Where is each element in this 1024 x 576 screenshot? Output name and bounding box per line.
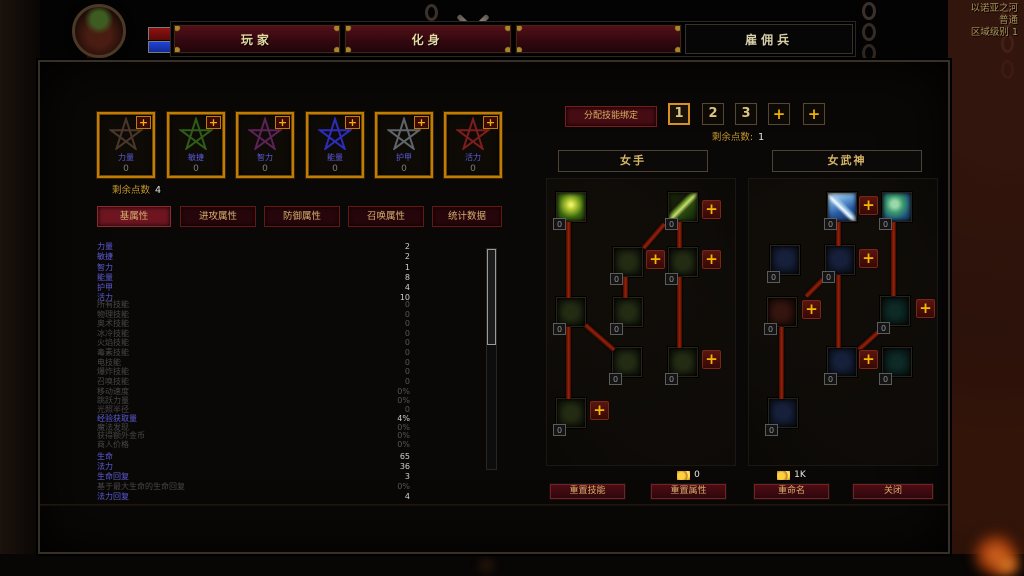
skill-point-count: 0 (824, 373, 837, 385)
skill-point-count: 0 (665, 373, 678, 385)
skill-point-count: 0 (610, 323, 623, 335)
rename-cost: 1K (753, 469, 830, 481)
add-point-button[interactable]: + (275, 116, 290, 129)
skill-point-count: 0 (822, 271, 835, 283)
skill-connector (891, 222, 896, 296)
attribute-name: 护甲 (377, 152, 431, 163)
add-skill-slot-button[interactable]: + (803, 103, 825, 125)
skill-point-count: 0 (610, 273, 623, 285)
skill-tree-title-right: 女武神 (772, 150, 922, 172)
stat-row: 生命65 (97, 452, 410, 462)
skill-slot-tab-2[interactable]: 2 (702, 103, 724, 125)
top-tab-bar: 玩家 化身 雇佣兵 (170, 21, 856, 57)
stat-row: 法力回复4 (97, 492, 410, 502)
skill-point-count: 0 (553, 218, 566, 230)
remaining-label: 剩余点数: (712, 132, 753, 143)
rename-button[interactable]: 重命名 (753, 483, 830, 500)
skill-tree-title-left: 女手 (558, 150, 708, 172)
stats-group-core: 力量2 敏捷2 智力1 能量8 护甲4 活力10 (97, 242, 410, 304)
attribute-value: 0 (377, 164, 431, 174)
gold-coin-icon (777, 471, 790, 480)
attribute-name: 智力 (238, 152, 292, 163)
close-button[interactable]: 关闭 (852, 483, 934, 500)
chain-decoration (1001, 60, 1014, 79)
skill-plus-button[interactable]: + (915, 298, 936, 319)
reset-skills-button[interactable]: 重置技能 (549, 483, 626, 500)
stat-row: 商人价格0% (97, 441, 410, 450)
stat-row: 法力36 (97, 462, 410, 472)
skill-plus-button[interactable]: + (589, 400, 610, 421)
skill-connector (779, 327, 784, 399)
attribute-card-armor[interactable]: 护甲 0 + (375, 112, 433, 178)
attribute-value: 0 (99, 164, 153, 174)
skill-point-count: 0 (665, 218, 678, 230)
attribute-value: 0 (308, 164, 362, 174)
stat-tab-defense[interactable]: 防御属性 (264, 206, 340, 227)
skill-plus-button[interactable]: + (858, 349, 879, 370)
attribute-card-intelligence[interactable]: 智力 0 + (236, 112, 294, 178)
stat-row: 生命回复3 (97, 472, 410, 482)
skill-plus-button[interactable]: + (701, 249, 722, 270)
skill-point-count: 0 (877, 322, 890, 334)
skill-plus-button[interactable]: + (701, 349, 722, 370)
skill-plus-button[interactable]: + (645, 249, 666, 270)
skill-plus-button[interactable]: + (858, 195, 879, 216)
attribute-card-vitality[interactable]: 活力 0 + (444, 112, 502, 178)
stat-row: 智力1 (97, 263, 410, 273)
stat-row: 火焰技能0 (97, 338, 410, 348)
skill-point-count: 0 (764, 323, 777, 335)
attribute-points-remaining: 剩余点数4 (112, 182, 161, 196)
attribute-value: 0 (446, 164, 500, 174)
remaining-value: 4 (155, 185, 161, 196)
stat-tab-summon[interactable]: 召唤属性 (348, 206, 424, 227)
skill-slot-tab-3[interactable]: 3 (735, 103, 757, 125)
skill-plus-button[interactable]: + (701, 199, 722, 220)
add-point-button[interactable]: + (136, 116, 151, 129)
region-area-level: 区域级别 1 (970, 27, 1018, 39)
add-point-button[interactable]: + (345, 116, 360, 129)
skill-point-count: 0 (767, 271, 780, 283)
panel-divider (40, 504, 948, 506)
stat-row: 电技能0 (97, 358, 410, 368)
stat-row: 召唤技能0 (97, 377, 410, 387)
region-difficulty: 普通 (970, 15, 1018, 27)
add-point-button[interactable]: + (414, 116, 429, 129)
game-screen: 1 65 / 65 36 / 36 以诺亚之河 普通 区域级别 1 玩家 化身 … (0, 0, 1024, 576)
stats-group-life-mana: 生命65 法力36 生命回复3 基于最大生命的生命回复0% 法力回复4 (97, 452, 410, 502)
skill-point-count: 0 (879, 218, 892, 230)
skill-point-count: 0 (765, 424, 778, 436)
skill-point-count: 0 (553, 424, 566, 436)
skill-connector (677, 277, 682, 348)
skill-slot-tab-1[interactable]: 1 (668, 103, 690, 125)
stat-row: 物理技能0 (97, 310, 410, 320)
stat-row: 基于最大生命的生命回复0% (97, 482, 410, 492)
remaining-label: 剩余点数 (112, 185, 150, 196)
stat-row: 护甲4 (97, 283, 410, 293)
left-background (0, 0, 40, 576)
stat-row: 敏捷2 (97, 252, 410, 262)
reset-stats-cost: 0 (650, 469, 727, 481)
cost-value: 0 (694, 469, 700, 481)
attribute-value: 0 (169, 164, 223, 174)
skill-plus-button[interactable]: + (801, 299, 822, 320)
attribute-name: 敏捷 (169, 152, 223, 163)
stats-scrollbar-thumb[interactable] (487, 249, 496, 345)
stat-tab-statistics[interactable]: 统计数据 (432, 206, 502, 227)
attribute-name: 力量 (99, 152, 153, 163)
stat-row: 跳跃力量0% (97, 397, 410, 406)
skill-connector (623, 277, 628, 298)
reset-stats-button[interactable]: 重置属性 (650, 483, 727, 500)
stat-row: 获得额外金币0% (97, 432, 410, 441)
stat-tab-offense[interactable]: 进攻属性 (180, 206, 256, 227)
skill-point-count: 0 (609, 373, 622, 385)
tab-mercenary[interactable]: 雇佣兵 (685, 24, 853, 54)
stat-row: 光照半径0 (97, 406, 410, 415)
ember-dot (482, 561, 491, 570)
add-skill-slot-button[interactable]: + (768, 103, 790, 125)
attribute-card-energy[interactable]: 能量 0 + (306, 112, 364, 178)
stat-row: 移动速度0% (97, 388, 410, 397)
stat-row: 力量2 (97, 242, 410, 252)
stats-group-utility: 移动速度0% 跳跃力量0% 光照半径0 经验获取量4% 魔法发现0% 获得额外金… (97, 388, 410, 450)
fire-glow (996, 556, 1018, 574)
stat-row: 冰冷技能0 (97, 329, 410, 339)
skill-points-remaining: 剩余点数:1 (688, 129, 788, 143)
cost-value: 1K (794, 469, 806, 481)
tab-empty[interactable] (515, 24, 683, 54)
stat-row: 能量8 (97, 273, 410, 283)
skill-connector (836, 275, 841, 348)
assign-skill-binding-button[interactable]: 分配技能绑定 (565, 106, 657, 127)
chain-decoration (862, 23, 876, 41)
skill-point-count: 0 (879, 373, 892, 385)
right-background (948, 0, 1024, 576)
skill-connector (566, 222, 571, 298)
stats-group-skill-bonuses: 所有技能0 物理技能0 奥术技能0 冰冷技能0 火焰技能0 毒素技能0 电技能0… (97, 300, 410, 386)
skill-plus-button[interactable]: + (858, 248, 879, 269)
stat-row: 毒素技能0 (97, 348, 410, 358)
stat-row: 爆炸技能0 (97, 367, 410, 377)
add-point-button[interactable]: + (206, 116, 221, 129)
tab-player[interactable]: 玩家 (173, 24, 341, 54)
skill-connector (566, 327, 571, 399)
chain-decoration (862, 2, 876, 20)
remaining-value: 1 (758, 132, 764, 143)
region-name: 以诺亚之河 (970, 3, 1018, 15)
stat-tab-base[interactable]: 基属性 (97, 206, 171, 227)
tab-avatar[interactable]: 化身 (344, 24, 512, 54)
skill-point-count: 0 (553, 323, 566, 335)
attribute-name: 能量 (308, 152, 362, 163)
attribute-value: 0 (238, 164, 292, 174)
attribute-name: 活力 (446, 152, 500, 163)
attribute-card-dexterity[interactable]: 敏捷 0 + (167, 112, 225, 178)
character-portrait[interactable] (72, 4, 126, 58)
add-point-button[interactable]: + (483, 116, 498, 129)
stat-row: 所有技能0 (97, 300, 410, 310)
bottom-background (0, 554, 1024, 576)
chain-decoration (425, 4, 438, 21)
skill-point-count: 0 (665, 273, 678, 285)
stat-row: 奥术技能0 (97, 319, 410, 329)
attribute-card-strength[interactable]: 力量 0 + (97, 112, 155, 178)
stat-row: 经验获取量4% (97, 415, 410, 424)
region-info: 以诺亚之河 普通 区域级别 1 (970, 3, 1018, 39)
gold-coin-icon (677, 471, 690, 480)
skill-point-count: 0 (824, 218, 837, 230)
